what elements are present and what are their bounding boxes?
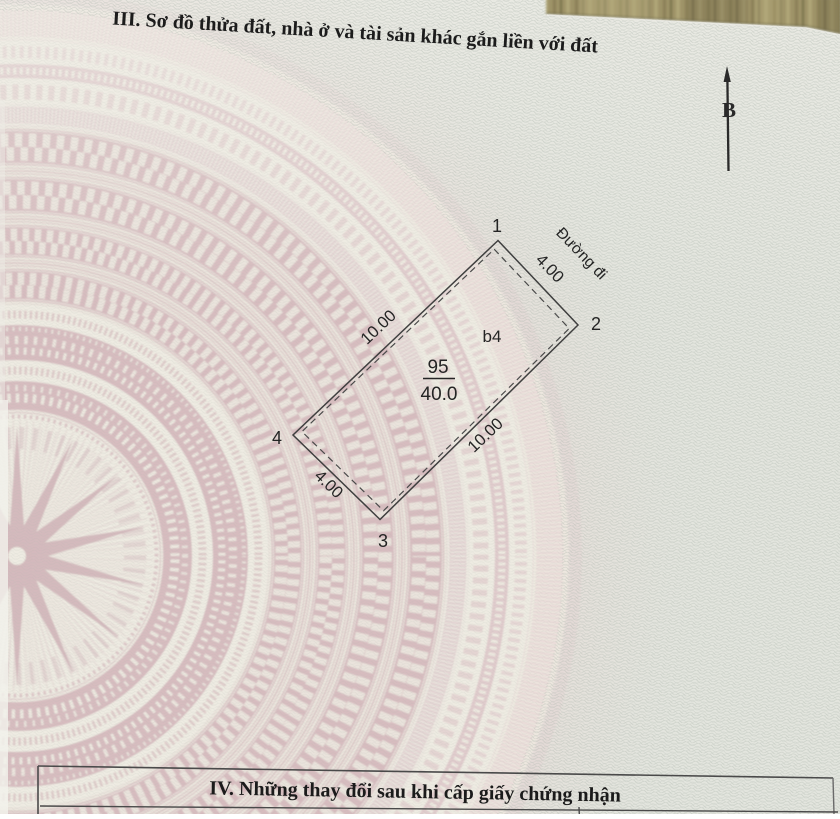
svg-text:1: 1 — [492, 216, 502, 236]
svg-text:95: 95 — [427, 357, 448, 378]
svg-text:2: 2 — [591, 314, 601, 334]
svg-text:B: B — [722, 98, 736, 122]
svg-text:3: 3 — [378, 531, 388, 551]
svg-text:b4: b4 — [483, 327, 502, 346]
svg-text:4: 4 — [272, 428, 282, 448]
svg-text:40.0: 40.0 — [421, 384, 458, 405]
